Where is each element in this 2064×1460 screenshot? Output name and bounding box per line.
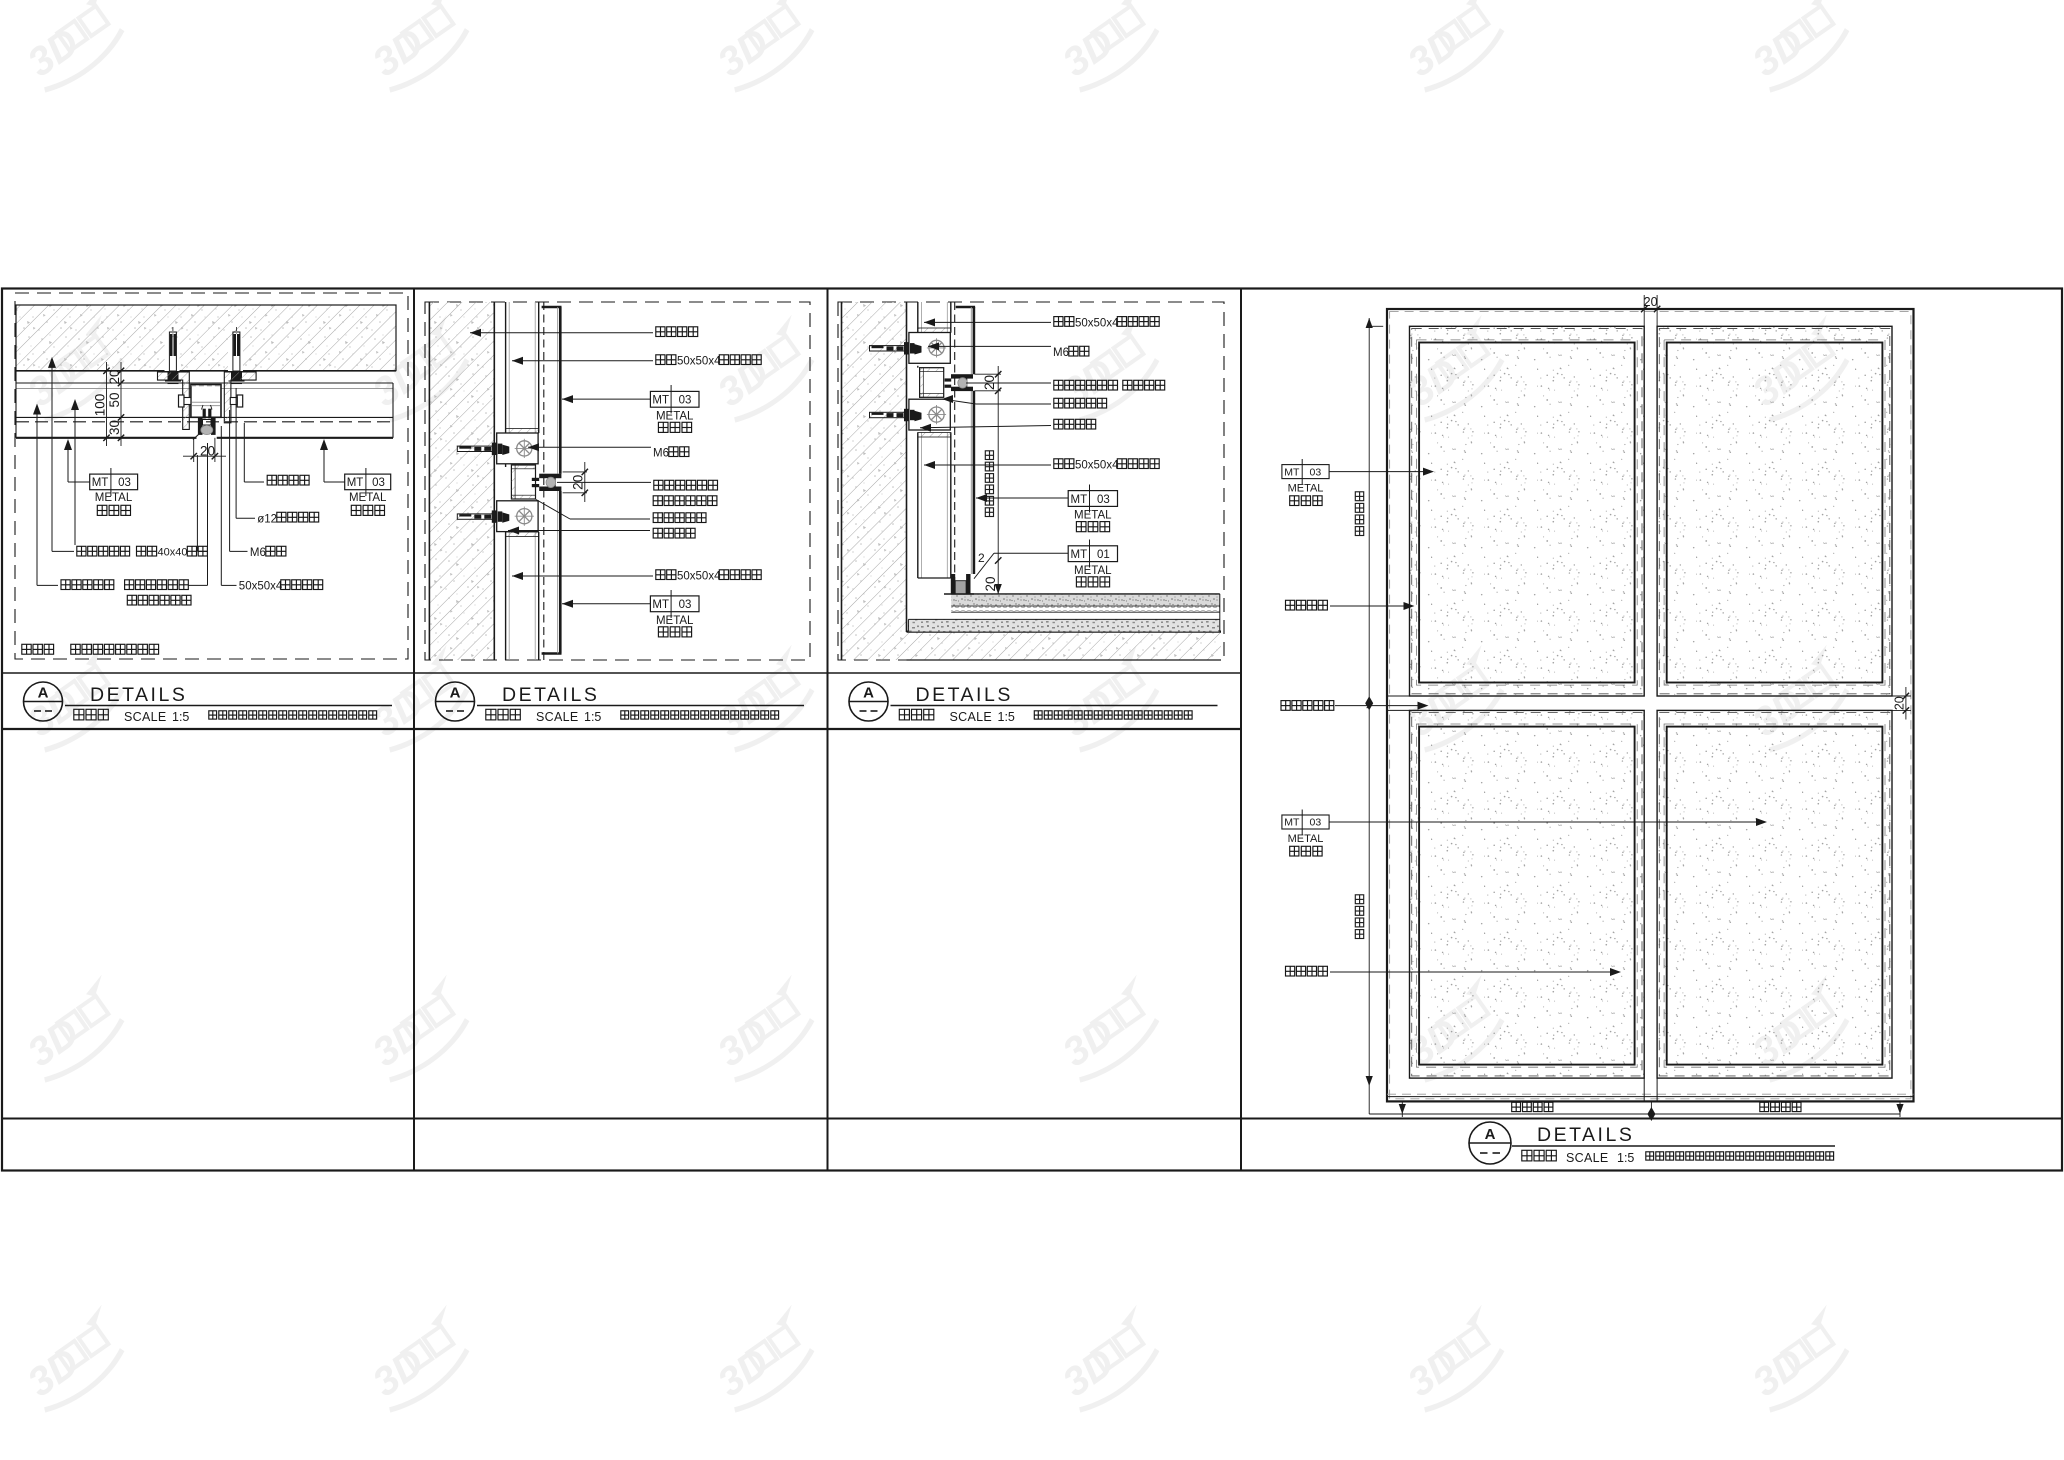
svg-text:DETAILS: DETAILS: [502, 684, 599, 706]
svg-text:A: A: [450, 685, 461, 702]
svg-text:40x40: 40x40: [158, 547, 188, 559]
svg-text:SCALE: SCALE: [124, 710, 167, 724]
svg-text:50x50x4: 50x50x4: [1075, 460, 1119, 472]
svg-text:A: A: [863, 685, 874, 702]
svg-text:50x50x4: 50x50x4: [677, 356, 721, 368]
svg-text:METAL: METAL: [1288, 833, 1324, 845]
svg-text:50x50x4: 50x50x4: [677, 571, 721, 583]
svg-text:20: 20: [983, 576, 998, 591]
svg-text:03: 03: [679, 395, 692, 407]
svg-text:M6: M6: [250, 547, 266, 559]
svg-text:M6: M6: [1053, 347, 1069, 359]
svg-text:03: 03: [1310, 466, 1322, 478]
svg-text:METAL: METAL: [349, 492, 387, 504]
svg-text:30: 30: [107, 420, 122, 435]
svg-text:20: 20: [1644, 295, 1658, 309]
svg-text:A: A: [38, 685, 49, 702]
svg-text:MT: MT: [1070, 549, 1087, 561]
svg-text:MT: MT: [1284, 817, 1300, 829]
svg-text:MT: MT: [652, 395, 669, 407]
svg-text:MT: MT: [92, 477, 109, 489]
svg-text:DETAILS: DETAILS: [916, 684, 1013, 706]
svg-text:METAL: METAL: [656, 411, 694, 423]
svg-text:03: 03: [118, 477, 131, 489]
svg-text:METAL: METAL: [1288, 483, 1324, 495]
svg-text:03: 03: [679, 599, 692, 611]
svg-text:1:5: 1:5: [584, 710, 601, 724]
svg-text:SCALE: SCALE: [536, 710, 579, 724]
svg-text:METAL: METAL: [656, 615, 694, 627]
svg-text:50: 50: [107, 392, 122, 407]
svg-text:1:5: 1:5: [172, 710, 189, 724]
svg-text:METAL: METAL: [1074, 565, 1112, 577]
svg-text:MT: MT: [347, 477, 364, 489]
svg-text:DETAILS: DETAILS: [90, 684, 187, 706]
svg-text:03: 03: [1310, 817, 1322, 829]
svg-text:MT: MT: [652, 599, 669, 611]
svg-text:MT: MT: [1284, 466, 1300, 478]
svg-text:01: 01: [1097, 549, 1110, 561]
svg-text:METAL: METAL: [1074, 510, 1112, 522]
svg-text:SCALE: SCALE: [950, 710, 993, 724]
svg-text:SCALE: SCALE: [1566, 1151, 1609, 1165]
svg-text:100: 100: [93, 394, 108, 417]
svg-text:ø12: ø12: [257, 514, 277, 526]
svg-text:20: 20: [1893, 696, 1907, 710]
svg-text:DETAILS: DETAILS: [1537, 1124, 1634, 1146]
svg-text:1:5: 1:5: [998, 710, 1015, 724]
svg-text:03: 03: [1097, 494, 1110, 506]
svg-text:METAL: METAL: [95, 492, 133, 504]
svg-text:MT: MT: [1070, 494, 1087, 506]
svg-text:50x50x4: 50x50x4: [239, 581, 283, 593]
svg-text:A: A: [1485, 1126, 1496, 1143]
svg-text:03: 03: [372, 477, 385, 489]
svg-text:50x50x4: 50x50x4: [1075, 317, 1119, 329]
svg-text:M6: M6: [653, 448, 669, 460]
svg-text:20: 20: [107, 369, 122, 384]
svg-text:2: 2: [978, 551, 985, 565]
svg-text:1:5: 1:5: [1617, 1151, 1634, 1165]
